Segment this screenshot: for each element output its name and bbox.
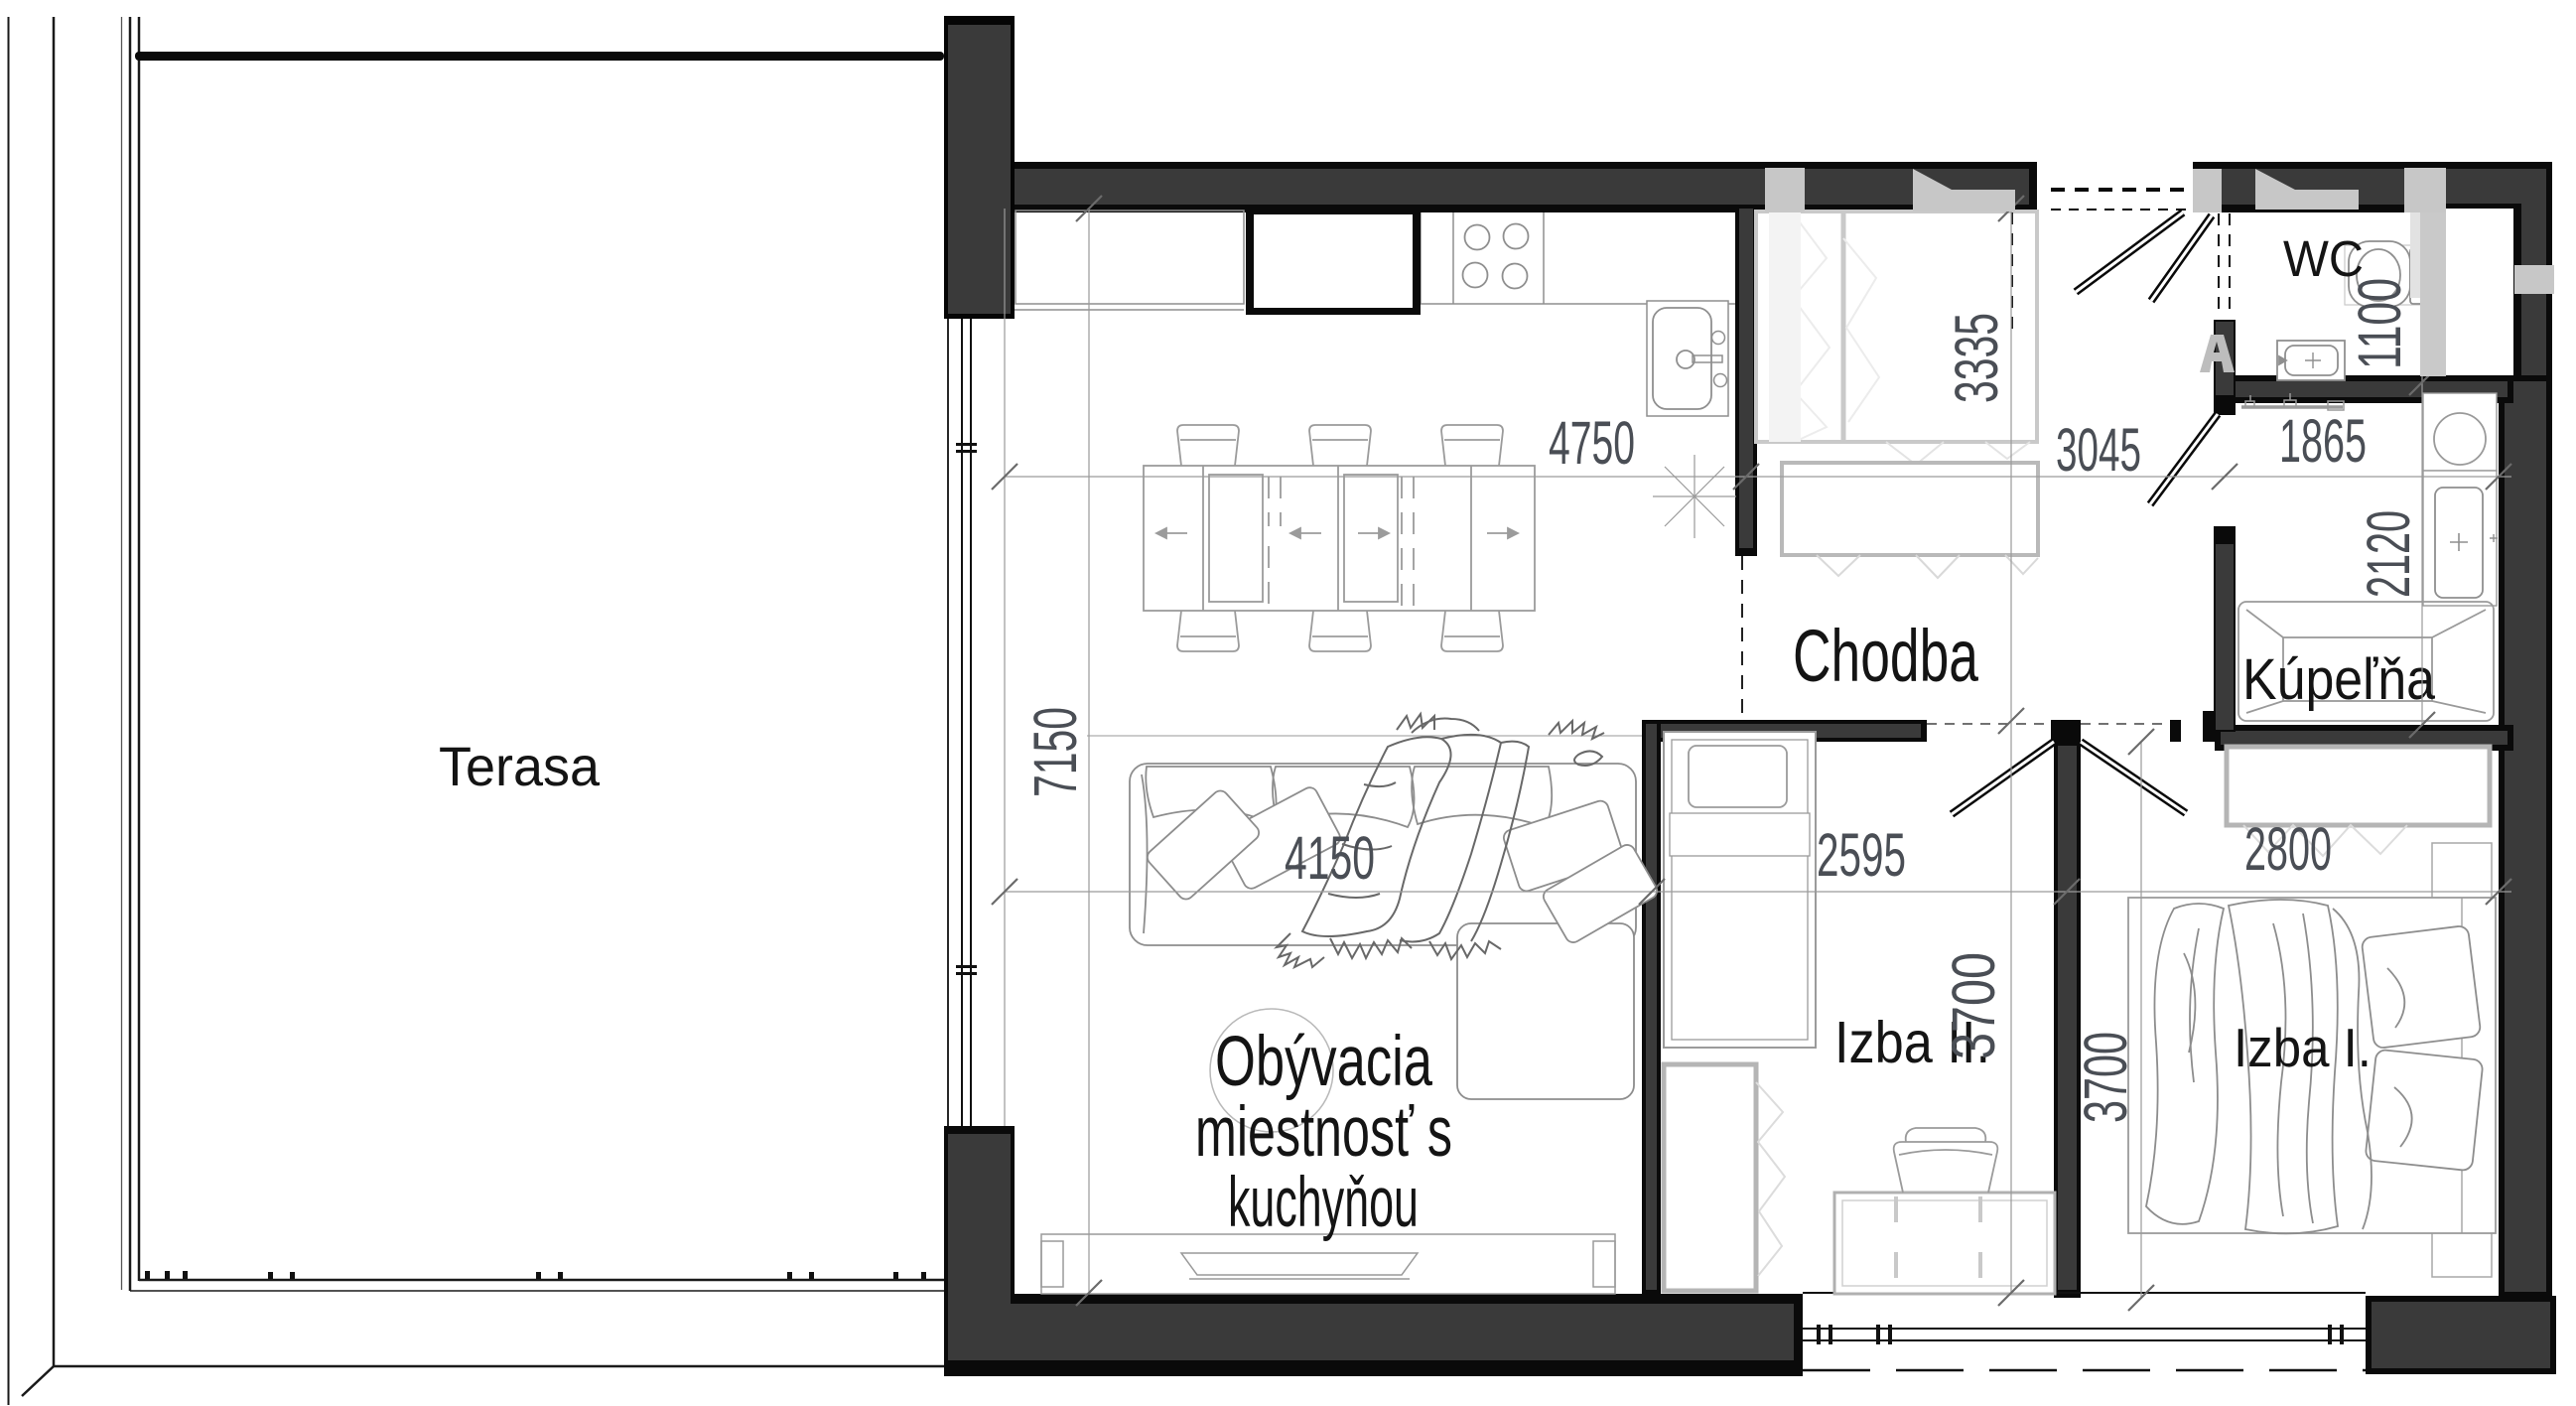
svg-text:Obývacia: Obývacia <box>1215 1023 1432 1101</box>
svg-text:Terasa: Terasa <box>439 735 601 797</box>
svg-text:1100: 1100 <box>2346 278 2413 369</box>
svg-text:3335: 3335 <box>1943 313 2010 403</box>
svg-text:4150: 4150 <box>1285 824 1375 892</box>
svg-text:3700: 3700 <box>2072 1032 2139 1123</box>
svg-text:3700: 3700 <box>1940 952 2007 1059</box>
svg-text:3045: 3045 <box>2056 416 2141 484</box>
svg-text:2120: 2120 <box>2355 510 2422 598</box>
svg-text:1865: 1865 <box>2279 407 2367 475</box>
svg-text:Izba I.: Izba I. <box>2234 1017 2372 1078</box>
svg-text:4750: 4750 <box>1549 409 1635 477</box>
svg-text:kuchyňou: kuchyňou <box>1228 1164 1419 1242</box>
svg-text:Chodba: Chodba <box>1793 615 1979 697</box>
svg-text:2595: 2595 <box>1817 821 1906 889</box>
svg-text:Kúpeľňa: Kúpeľňa <box>2242 647 2436 712</box>
svg-text:miestnosť s: miestnosť s <box>1195 1093 1452 1172</box>
svg-text:7150: 7150 <box>1021 707 1089 797</box>
svg-text:2800: 2800 <box>2244 815 2332 883</box>
